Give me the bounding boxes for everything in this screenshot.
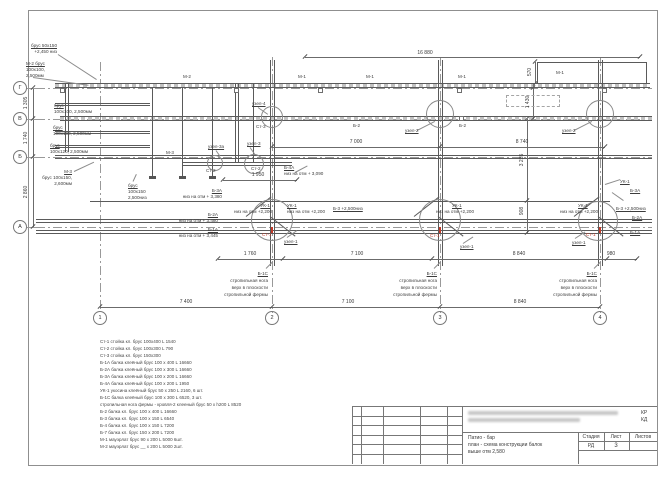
annotation-label: стропильной фермы <box>224 292 268 297</box>
annotation-label: 2,500низ <box>128 195 147 200</box>
beam-line <box>55 155 652 156</box>
annotation-label: Ст-2 <box>251 166 261 171</box>
annotation-label: УК-1 <box>260 203 270 208</box>
annotation-label: М-1 <box>366 74 374 79</box>
annotation-label: Б-1А <box>208 227 218 232</box>
legend-line: Б-7 балка кл. брус 150 x 200 L 7200 <box>100 431 174 436</box>
annotation-label: Ст-1 <box>262 232 272 237</box>
annotation-label: низ на отм + 3,380 <box>183 194 222 199</box>
grid-bubble-row-v: В <box>13 112 27 126</box>
grid-axis-line <box>600 57 601 313</box>
beam-line <box>537 62 647 63</box>
dashed-outline <box>506 95 560 107</box>
annotation-label: М-1 <box>556 70 564 75</box>
annotation-label: УК-1 <box>287 203 297 208</box>
connection-plate <box>234 88 239 93</box>
annotation-label: Б-3 +2,500низ <box>616 206 646 211</box>
post-base <box>209 176 216 179</box>
drawing-sheet: Г В Б А 1 2 3 4 брус 50x150+2,450 низМ-2… <box>0 0 667 480</box>
grid-bubble-col-2: 2 <box>265 311 279 325</box>
annotation-label: 100x120, 2,500мм <box>50 149 88 154</box>
annotation-label: верх в плоскости <box>401 285 437 290</box>
legend-line: Б-1А балка клеёный брус 100 x 400 L 1666… <box>100 361 192 366</box>
annotation-label: брус 50x150 <box>31 43 57 48</box>
annotation-label: Б-1С <box>427 271 437 276</box>
annotation-label: УК-1 <box>578 203 588 208</box>
annotation-label: брус <box>50 143 60 148</box>
title-block-line <box>352 435 462 436</box>
annotation-label: Б-1А <box>630 230 640 235</box>
legend-line: Ст-1 стойка кл. брус 100x400 L 1540 <box>100 340 176 345</box>
beam-line <box>152 88 153 178</box>
annotation-label: Б-1С <box>258 271 268 276</box>
annotation-label: низ на отм +2,200 <box>234 209 272 214</box>
node-detail-circle <box>586 100 614 128</box>
annotation-label: М-3 <box>166 150 174 155</box>
annotation-label: низ на отм + 3,445 <box>179 233 218 238</box>
beam-line <box>235 84 236 162</box>
legend-line: Б-3А балка клеёный брус 100 x 200 L 1666… <box>100 375 192 380</box>
legend-line: М-1 мауэрлат брус 90 x 200 L 5000 6шт. <box>100 438 183 443</box>
dimension-label: 8 740 <box>516 140 529 146</box>
annotation-label: брус <box>54 103 64 108</box>
beam-line <box>182 162 292 163</box>
beam-line <box>36 233 652 234</box>
beam-line <box>36 230 652 231</box>
annotation-label: низ на отм + 3,090 <box>284 171 323 176</box>
beam-line <box>55 145 150 146</box>
annotation-label: низ на отм +2,200 <box>560 209 598 214</box>
legend-line: Б-2 балка кл. брус 100 x 400 L 16660 <box>100 410 177 415</box>
annotation-label: Б-4А <box>284 165 294 170</box>
annotation-label: М-3 <box>64 169 72 174</box>
legend-line: Б-4 балка кл. брус 100 x 150 L 7200 <box>100 424 174 429</box>
annotation-label: Б-2 <box>353 123 360 128</box>
annotation-label: М-1 <box>458 74 466 79</box>
legend-line: М-2 мауэрлат брус __ x 200 L 5000 2шт. <box>100 445 183 450</box>
annotation-label: 2,600мм <box>54 181 72 186</box>
title-block-line <box>352 444 462 445</box>
annotation-label: Б-2 <box>459 123 466 128</box>
connection-plate <box>318 88 323 93</box>
grid-bubble-col-3: 3 <box>433 311 447 325</box>
annotation-label: М-1 <box>298 74 306 79</box>
doc-title-line-1: Патио - бар <box>468 435 495 441</box>
beam-line <box>36 219 652 220</box>
dimension-label: 3 235 <box>520 154 526 167</box>
annotation-label: УК-1 <box>620 179 630 184</box>
annotation-label: Ст-1 <box>430 233 440 238</box>
dimension-line <box>100 307 600 308</box>
dimension-label: 908 <box>520 207 526 215</box>
stage-header: Стадия <box>582 434 599 440</box>
dimension-label: 8 840 <box>513 252 526 258</box>
connection-plate <box>60 88 65 93</box>
dimension-label: 1 760 <box>244 252 257 258</box>
annotation-label: низ на отм +2,200 <box>436 209 474 214</box>
dimension-label: 570 <box>528 68 534 76</box>
title-block-line <box>578 441 657 442</box>
dimension-label: 7 000 <box>350 140 363 146</box>
annotation-label: Б-3А <box>630 188 640 193</box>
annotation-label: брус <box>128 183 138 188</box>
annotation-label: узел-1 <box>572 240 586 245</box>
legend-line: Ст-2 стойка кл. брус 100x300 L 790 <box>100 347 173 352</box>
annotation-label: Ст-3 <box>256 124 266 129</box>
legend-line: стропильная нога фермы - кровля-2 клеены… <box>100 403 241 408</box>
dimension-label: 16 880 <box>417 51 432 57</box>
project-name-redacted <box>468 411 618 415</box>
annotation-label: 100x100, 2,500мм <box>53 131 91 136</box>
annotation-label: узел-2 <box>405 128 419 133</box>
dimension-label: 1 740 <box>24 132 30 145</box>
annotation-label: Б-2А <box>208 212 218 217</box>
doc-title-line-2: план - схема конструкции балок <box>468 442 542 448</box>
beam-line <box>68 84 69 152</box>
beam-line <box>65 84 66 152</box>
grid-bubble-col-1: 1 <box>93 311 107 325</box>
dimension-label: 7 100 <box>351 252 364 258</box>
annotation-label: верх в плоскости <box>232 285 268 290</box>
beam-line <box>238 84 239 162</box>
dimension-line <box>305 57 640 58</box>
legend-line: Ст-3 стойка кл. брус 150x300 <box>100 354 161 359</box>
title-block-line <box>352 454 462 455</box>
dimension-label: 8 840 <box>514 300 527 306</box>
grid-axis-line <box>36 227 652 228</box>
annotation-label: Ст-1 <box>586 232 596 237</box>
grid-axis-line <box>440 57 441 313</box>
doc-code-kr: КР <box>641 410 647 416</box>
grid-bubble-col-4: 4 <box>593 311 607 325</box>
dimension-label: 980 <box>607 252 615 258</box>
title-block-line <box>462 432 657 433</box>
grid-axis-line <box>272 57 273 313</box>
annotation-label: узел-3 <box>247 141 261 146</box>
sheet-header: Лист <box>611 434 622 440</box>
annotation-label: брус 100x150, <box>42 175 72 180</box>
title-block-line <box>578 432 579 464</box>
dimension-label: 1 950 <box>252 173 265 179</box>
annotation-label: 100x150 <box>128 189 146 194</box>
red-marker <box>599 227 601 233</box>
dimension-label: 7 100 <box>342 300 355 306</box>
dimension-label: 1 430 <box>526 96 532 109</box>
dimension-line <box>223 180 297 181</box>
doc-title-line-3: выше отм 2,580 <box>468 449 505 455</box>
dimension-label: 2 860 <box>24 186 30 199</box>
sheet-number: 3 <box>614 443 617 449</box>
title-block-line <box>462 406 463 464</box>
beam-hatch <box>55 84 650 87</box>
legend-line: Б-2А балка клеёный брус 100 x 300 L 1666… <box>100 368 192 373</box>
grid-axis-line <box>36 88 652 89</box>
project-address-redacted <box>468 418 580 422</box>
annotation-label: стропильной фермы <box>393 292 437 297</box>
connection-plate <box>457 88 462 93</box>
legend-line: Б-4А балка клеёный брус 100 x 200 L 1950 <box>100 382 189 387</box>
annotation-label: 100x100, 2,500мм <box>54 109 92 114</box>
doc-code-kd: КД <box>641 417 647 423</box>
annotation-label: Б-3 +2,500низ <box>333 206 363 211</box>
connection-plate <box>459 116 464 121</box>
annotation-label: М-2 брус <box>26 61 45 66</box>
annotation-label: Б-3А <box>212 188 222 193</box>
annotation-label: верх в плоскости <box>561 285 597 290</box>
post-base <box>149 176 156 179</box>
grid-bubble-row-g: Г <box>13 81 27 95</box>
annotation-label: стропильная нога <box>230 278 268 283</box>
annotation-label: +2,450 низ <box>34 49 57 54</box>
stage-value: РД <box>588 443 594 449</box>
grid-bubble-row-b: Б <box>13 150 27 164</box>
annotation-label: 100x100, <box>26 67 45 72</box>
dimension-line <box>527 119 528 233</box>
annotation-label: Б-1С <box>587 271 597 276</box>
title-block-line <box>578 450 657 451</box>
title-block-line <box>352 416 462 417</box>
annotation-label: стропильной фермы <box>553 292 597 297</box>
annotation-label: узел-4 <box>252 101 266 106</box>
annotation-label: низ на отм + 3,480 <box>179 218 218 223</box>
beam-line <box>55 158 652 159</box>
annotation-label: 2,500мм <box>26 73 44 78</box>
annotation-label: узел-1 <box>460 244 474 249</box>
annotation-label: узел-1 <box>284 239 298 244</box>
beam-line <box>36 222 652 223</box>
annotation-label: УК-1 <box>452 203 462 208</box>
annotation-label: низ на отм +2,200 <box>287 209 325 214</box>
annotation-label: М-2 <box>183 74 191 79</box>
beam-line <box>90 201 610 202</box>
beam-line <box>55 87 650 88</box>
sheets-header: Листов <box>635 434 651 440</box>
legend-line: Б-1С балка клеёный брус 100 x 300 L 6520… <box>100 396 202 401</box>
beam-line <box>60 120 652 121</box>
beam-line <box>646 62 647 84</box>
beam-line <box>55 105 150 106</box>
beam-line <box>182 88 183 178</box>
title-block-line <box>352 425 462 426</box>
annotation-label: Ст-2 <box>206 168 216 173</box>
legend-line: Б-3 балка кл. брус 100 x 150 L 6540 <box>100 417 174 422</box>
annotation-label: узел-2 <box>562 128 576 133</box>
beam-line <box>55 103 150 104</box>
title-block-line <box>352 406 657 407</box>
beam-line <box>55 147 150 148</box>
dimension-label: 7 400 <box>180 300 193 306</box>
annotation-label: стропильная нога <box>559 278 597 283</box>
connection-plate <box>602 88 607 93</box>
beam-hatch <box>60 117 652 120</box>
grid-bubble-row-a: А <box>13 220 27 234</box>
annotation-label: Б-2А <box>632 215 642 220</box>
annotation-label: брус <box>53 125 63 130</box>
beam-line <box>182 165 292 166</box>
annotation-label: стропильная нога <box>399 278 437 283</box>
annotation-label: узел-3а <box>208 144 224 149</box>
dimension-label: 1 305 <box>24 97 30 110</box>
legend-line: УК-1 укосина клеёный брус 50 x 250 L 216… <box>100 389 203 394</box>
grid-axis-line <box>100 62 101 312</box>
post-base <box>179 176 186 179</box>
